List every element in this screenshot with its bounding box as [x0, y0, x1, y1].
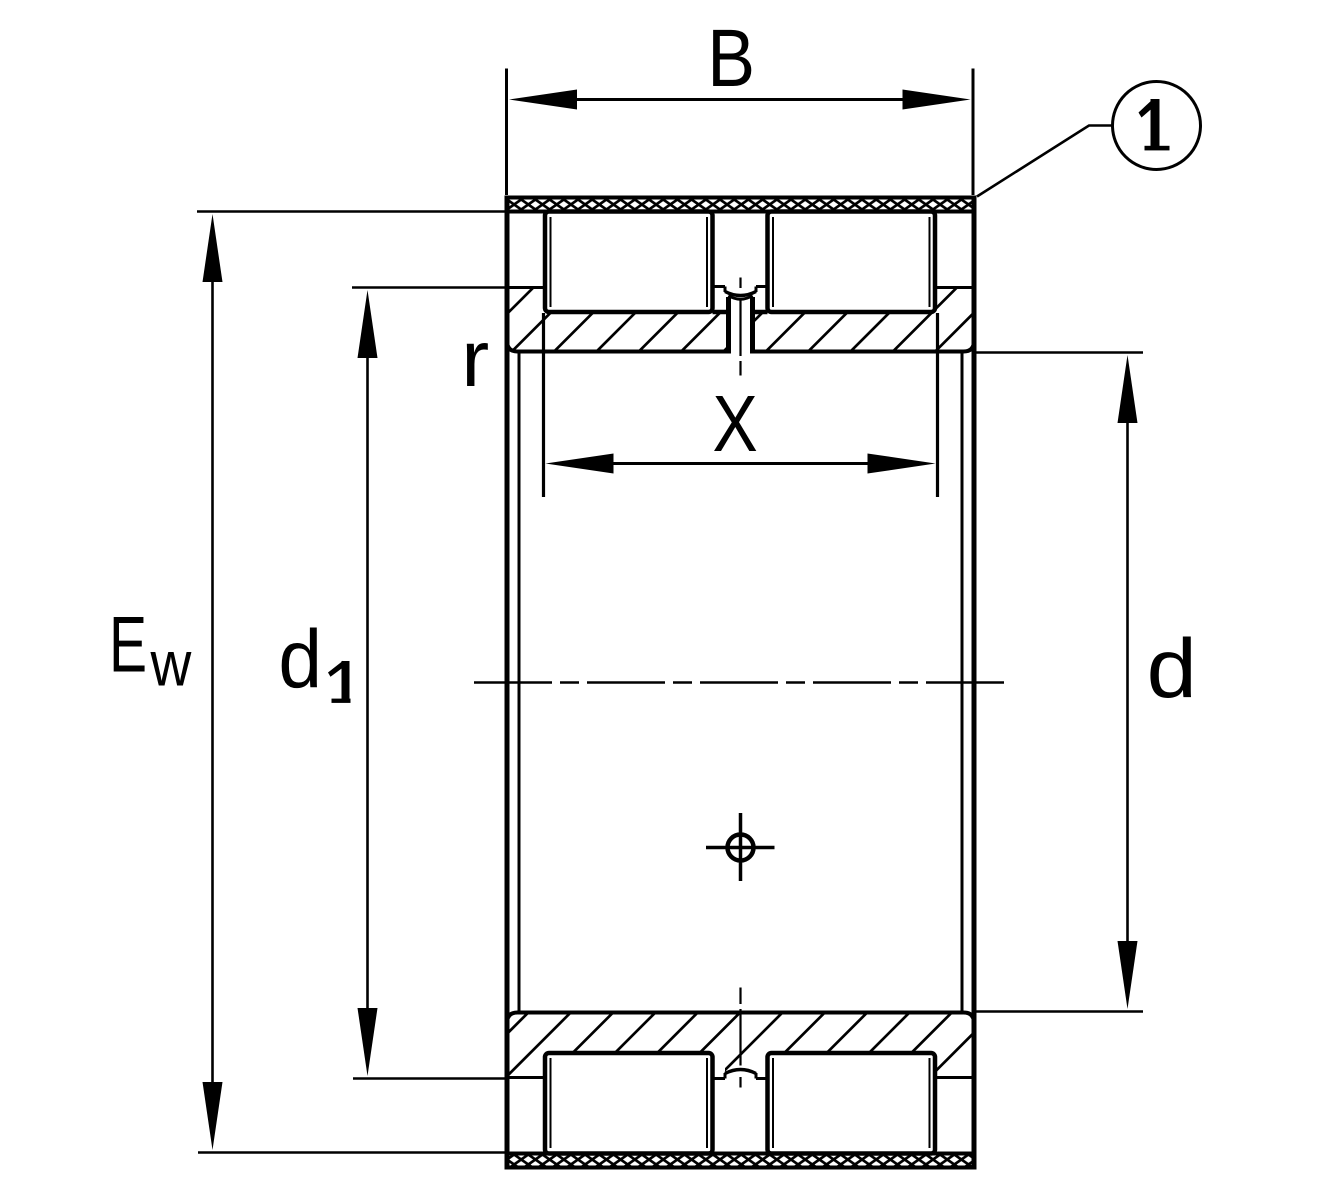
svg-text:d: d [1147, 622, 1197, 715]
svg-text:w: w [150, 629, 192, 700]
svg-text:B: B [707, 14, 755, 104]
svg-text:X: X [713, 379, 758, 469]
svg-text:d: d [278, 613, 322, 705]
svg-text:E: E [109, 600, 147, 688]
svg-text:r: r [461, 315, 489, 404]
